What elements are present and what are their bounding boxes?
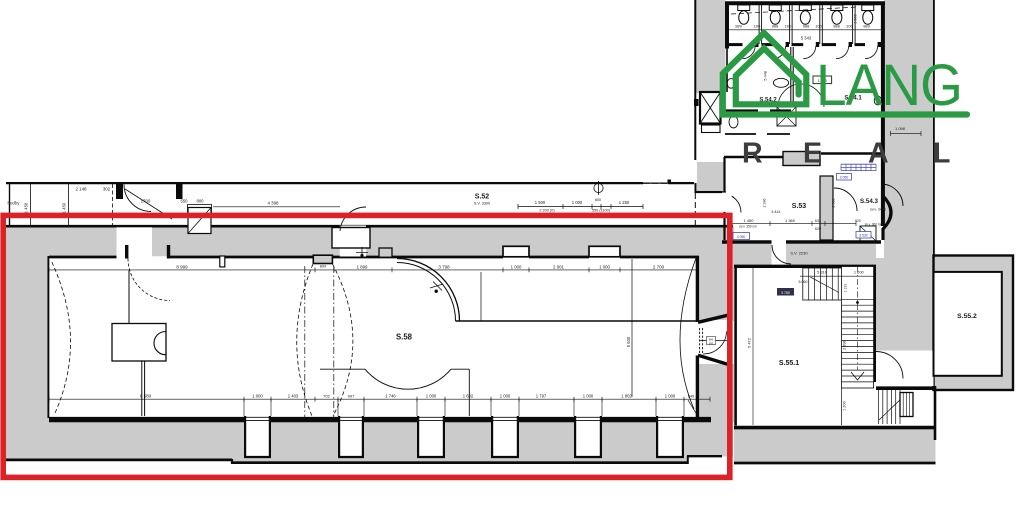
svg-text:1 191: 1 191 [844,284,848,293]
svg-text:S.55.2: S.55.2 [957,313,977,320]
svg-text:989: 989 [735,24,742,29]
svg-text:1 360: 1 360 [785,218,796,223]
svg-text:1 000: 1 000 [511,264,522,269]
svg-text:S.52: S.52 [475,194,490,201]
svg-text:8 999: 8 999 [176,264,188,269]
svg-text:1 000: 1 000 [583,394,594,399]
svg-text:100: 100 [815,24,822,29]
svg-text:550: 550 [181,199,189,204]
svg-text:2 148: 2 148 [76,187,88,192]
svg-text:930: 930 [709,341,714,345]
svg-text:1 403: 1 403 [288,394,299,399]
svg-text:920: 920 [855,219,861,223]
svg-text:hodby: hodby [8,201,21,206]
svg-text:S.53: S.53 [792,203,807,210]
svg-text:2 898: 2 898 [843,340,847,350]
svg-text:100: 100 [846,24,853,29]
svg-text:302: 302 [103,187,111,192]
svg-text:1 000: 1 000 [500,394,511,399]
svg-text:2 200 (0): 2 200 (0) [539,209,555,213]
svg-text:S.54.3: S.54.3 [860,198,878,205]
svg-text:3 750: 3 750 [781,291,790,295]
svg-text:5 472: 5 472 [747,337,752,348]
svg-text:1 602: 1 602 [463,394,474,399]
svg-text:1 746: 1 746 [385,394,396,399]
svg-text:800: 800 [197,199,205,204]
svg-text:4 398: 4 398 [268,201,280,206]
svg-text:1 450: 1 450 [24,202,29,213]
svg-text:1 000: 1 000 [665,394,676,399]
svg-text:2 700: 2 700 [653,264,665,269]
svg-text:sv.v. 150 cm: sv.v. 150 cm [739,225,757,229]
svg-text:2 001: 2 001 [553,264,564,269]
svg-text:S.55.1: S.55.1 [779,360,799,367]
svg-text:900: 900 [709,337,714,341]
svg-text:631: 631 [815,219,821,223]
svg-text:S.V. 2230: S.V. 2230 [790,251,808,256]
svg-text:R: R [742,138,763,170]
svg-text:E: E [803,138,822,170]
svg-text:1 098: 1 098 [895,126,906,131]
svg-text:1 200: 1 200 [843,401,847,411]
svg-text:100: 100 [785,24,792,29]
svg-text:1 802: 1 802 [621,394,632,399]
svg-text:S.58: S.58 [396,333,413,342]
svg-text:L: L [933,138,950,170]
svg-text:988: 988 [833,24,840,29]
svg-text:3 050: 3 050 [840,176,849,180]
svg-text:4 050: 4 050 [737,235,746,239]
svg-text:5 343: 5 343 [801,36,812,41]
svg-text:S.V. 3300: S.V. 3300 [474,202,490,206]
svg-text:1 000: 1 000 [426,394,437,399]
svg-text:1 250: 1 250 [619,200,630,205]
svg-text:988: 988 [803,24,810,29]
svg-text:100: 100 [754,24,761,29]
svg-text:997: 997 [348,394,355,399]
svg-text:989: 989 [863,24,870,29]
svg-text:1 500: 1 500 [535,200,546,205]
svg-text:LANG: LANG [816,53,962,118]
svg-text:550 (1100): 550 (1100) [592,209,611,213]
svg-text:1 797: 1 797 [536,394,547,399]
svg-text:3.441: 3.441 [771,210,781,214]
svg-text:1 000: 1 000 [599,264,610,269]
svg-text:899: 899 [320,263,327,268]
svg-text:5 316: 5 316 [817,270,827,275]
svg-text:5 448: 5 448 [764,71,768,81]
svg-text:A: A [868,138,889,170]
svg-text:2 336: 2 336 [832,199,836,208]
svg-text:1 000: 1 000 [572,200,583,205]
svg-text:3 530: 3 530 [859,234,867,238]
svg-text:1700: 1700 [141,199,151,204]
svg-text:5.060: 5.060 [799,280,808,284]
svg-text:988: 988 [772,24,779,29]
svg-text:1 000: 1 000 [252,394,263,399]
svg-text:5 600: 5 600 [626,336,631,347]
svg-text:702: 702 [323,394,330,399]
svg-text:629: 629 [815,227,821,231]
svg-text:sv.v. 3440: sv.v. 3440 [870,208,886,212]
svg-text:1 450: 1 450 [743,218,754,223]
svg-text:1 450: 1 450 [62,202,67,213]
svg-text:1 500: 1 500 [854,14,858,24]
svg-text:600: 600 [595,198,601,202]
svg-text:2 336: 2 336 [763,199,767,208]
svg-text:3 798: 3 798 [438,264,450,269]
svg-text:1 200: 1 200 [854,270,865,275]
svg-text:1 899: 1 899 [357,264,368,269]
